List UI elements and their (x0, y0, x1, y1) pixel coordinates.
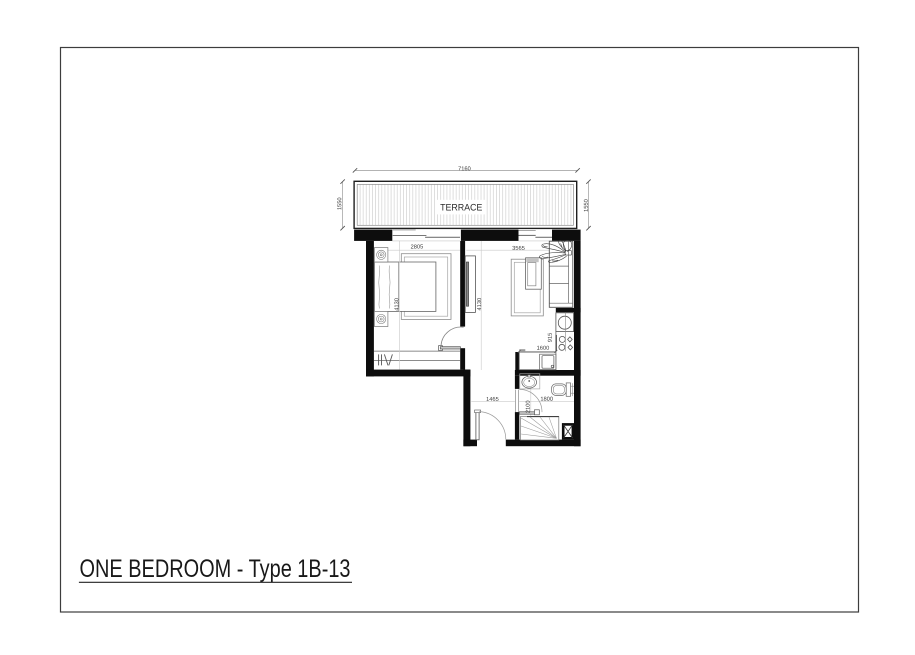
svg-text:ONE BEDROOM - Type 1B-13: ONE BEDROOM - Type 1B-13 (80, 555, 351, 583)
